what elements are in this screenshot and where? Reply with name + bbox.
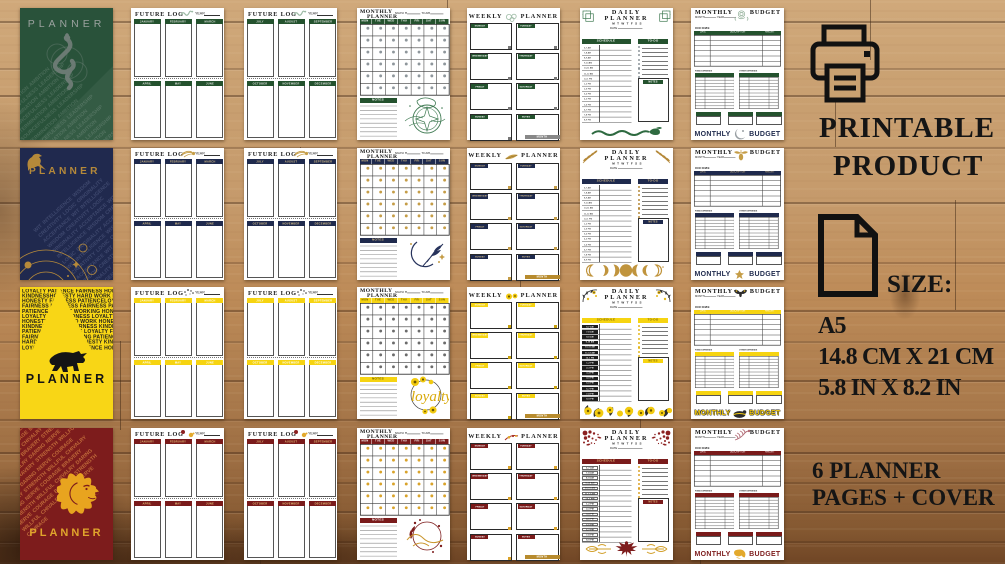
svg-text:loyalty: loyalty xyxy=(411,389,449,405)
